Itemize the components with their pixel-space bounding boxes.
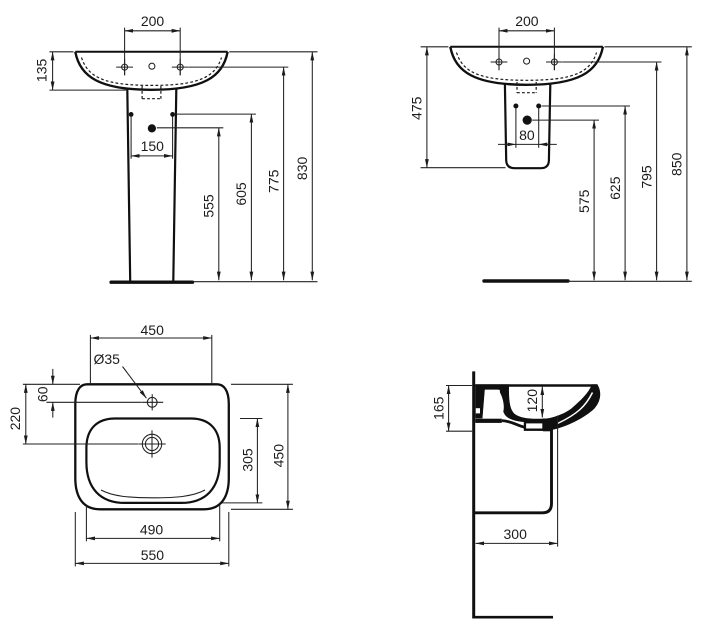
svg-text:200: 200: [141, 13, 165, 29]
svg-text:220: 220: [7, 407, 23, 431]
svg-text:775: 775: [265, 169, 281, 193]
svg-text:450: 450: [141, 322, 165, 338]
svg-text:Ø35: Ø35: [94, 351, 121, 367]
svg-text:850: 850: [669, 152, 685, 176]
svg-text:60: 60: [35, 386, 51, 402]
svg-text:555: 555: [201, 194, 217, 218]
svg-text:200: 200: [515, 13, 539, 29]
svg-text:300: 300: [504, 526, 528, 542]
svg-text:830: 830: [294, 157, 310, 181]
svg-text:550: 550: [141, 547, 165, 563]
svg-text:575: 575: [576, 189, 592, 213]
svg-text:165: 165: [431, 396, 447, 420]
svg-text:475: 475: [408, 96, 424, 120]
svg-text:150: 150: [141, 138, 165, 154]
svg-text:305: 305: [240, 448, 256, 472]
svg-text:80: 80: [519, 127, 535, 143]
svg-text:450: 450: [270, 444, 286, 468]
svg-text:625: 625: [607, 176, 623, 200]
svg-text:490: 490: [140, 522, 164, 538]
svg-text:135: 135: [34, 59, 50, 83]
svg-text:795: 795: [638, 165, 654, 189]
svg-text:120: 120: [524, 389, 540, 413]
svg-text:605: 605: [233, 182, 249, 206]
